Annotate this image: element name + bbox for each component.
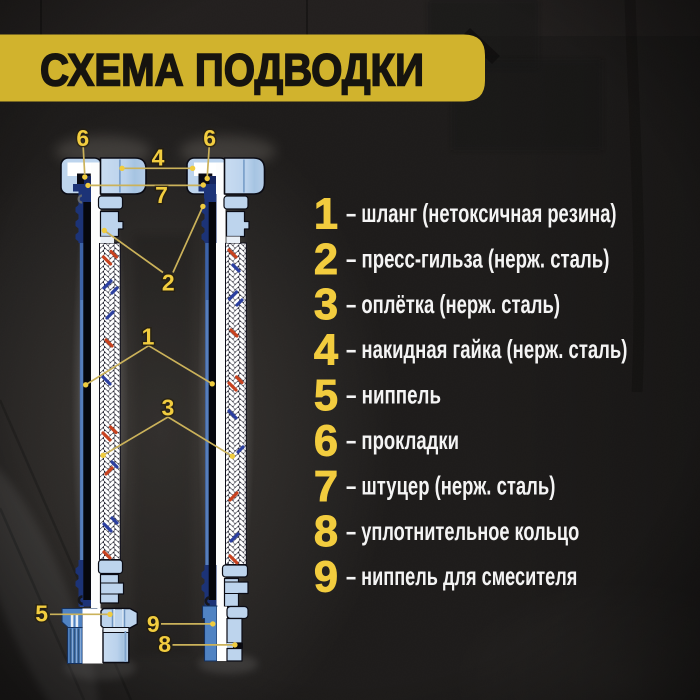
svg-text:4: 4 xyxy=(314,327,338,375)
svg-text:2: 2 xyxy=(162,270,175,296)
svg-text:8: 8 xyxy=(158,631,171,657)
svg-text:– оплётка (нерж. сталь): – оплётка (нерж. сталь) xyxy=(346,289,560,319)
svg-text:– накидная гайка (нерж. сталь): – накидная гайка (нерж. сталь) xyxy=(346,334,627,364)
svg-text:– шланг (нетоксичная резина): – шланг (нетоксичная резина) xyxy=(346,198,617,228)
svg-text:– пресс-гильза (нерж. сталь): – пресс-гильза (нерж. сталь) xyxy=(346,243,609,273)
svg-text:– ниппель для смесителя: – ниппель для смесителя xyxy=(346,561,577,591)
svg-text:– ниппель: – ниппель xyxy=(346,380,441,410)
svg-text:3: 3 xyxy=(162,394,175,420)
svg-text:1: 1 xyxy=(314,190,338,238)
svg-text:5: 5 xyxy=(314,372,338,420)
svg-text:– штуцер (нерж. сталь): – штуцер (нерж. сталь) xyxy=(346,470,555,500)
svg-text:4: 4 xyxy=(152,145,165,171)
svg-text:2: 2 xyxy=(314,236,338,284)
svg-text:9: 9 xyxy=(314,554,338,602)
svg-text:8: 8 xyxy=(314,508,338,556)
svg-text:5: 5 xyxy=(35,601,48,627)
svg-text:7: 7 xyxy=(314,463,338,511)
svg-text:3: 3 xyxy=(314,281,338,329)
svg-text:СХЕМА ПОДВОДКИ: СХЕМА ПОДВОДКИ xyxy=(40,45,424,96)
svg-text:1: 1 xyxy=(142,324,155,350)
svg-text:– прокладки: – прокладки xyxy=(346,425,459,455)
svg-text:6: 6 xyxy=(76,125,89,151)
svg-text:6: 6 xyxy=(314,417,338,465)
svg-text:7: 7 xyxy=(155,182,168,208)
svg-text:– уплотнительное кольцо: – уплотнительное кольцо xyxy=(346,516,579,546)
svg-text:6: 6 xyxy=(203,125,216,151)
